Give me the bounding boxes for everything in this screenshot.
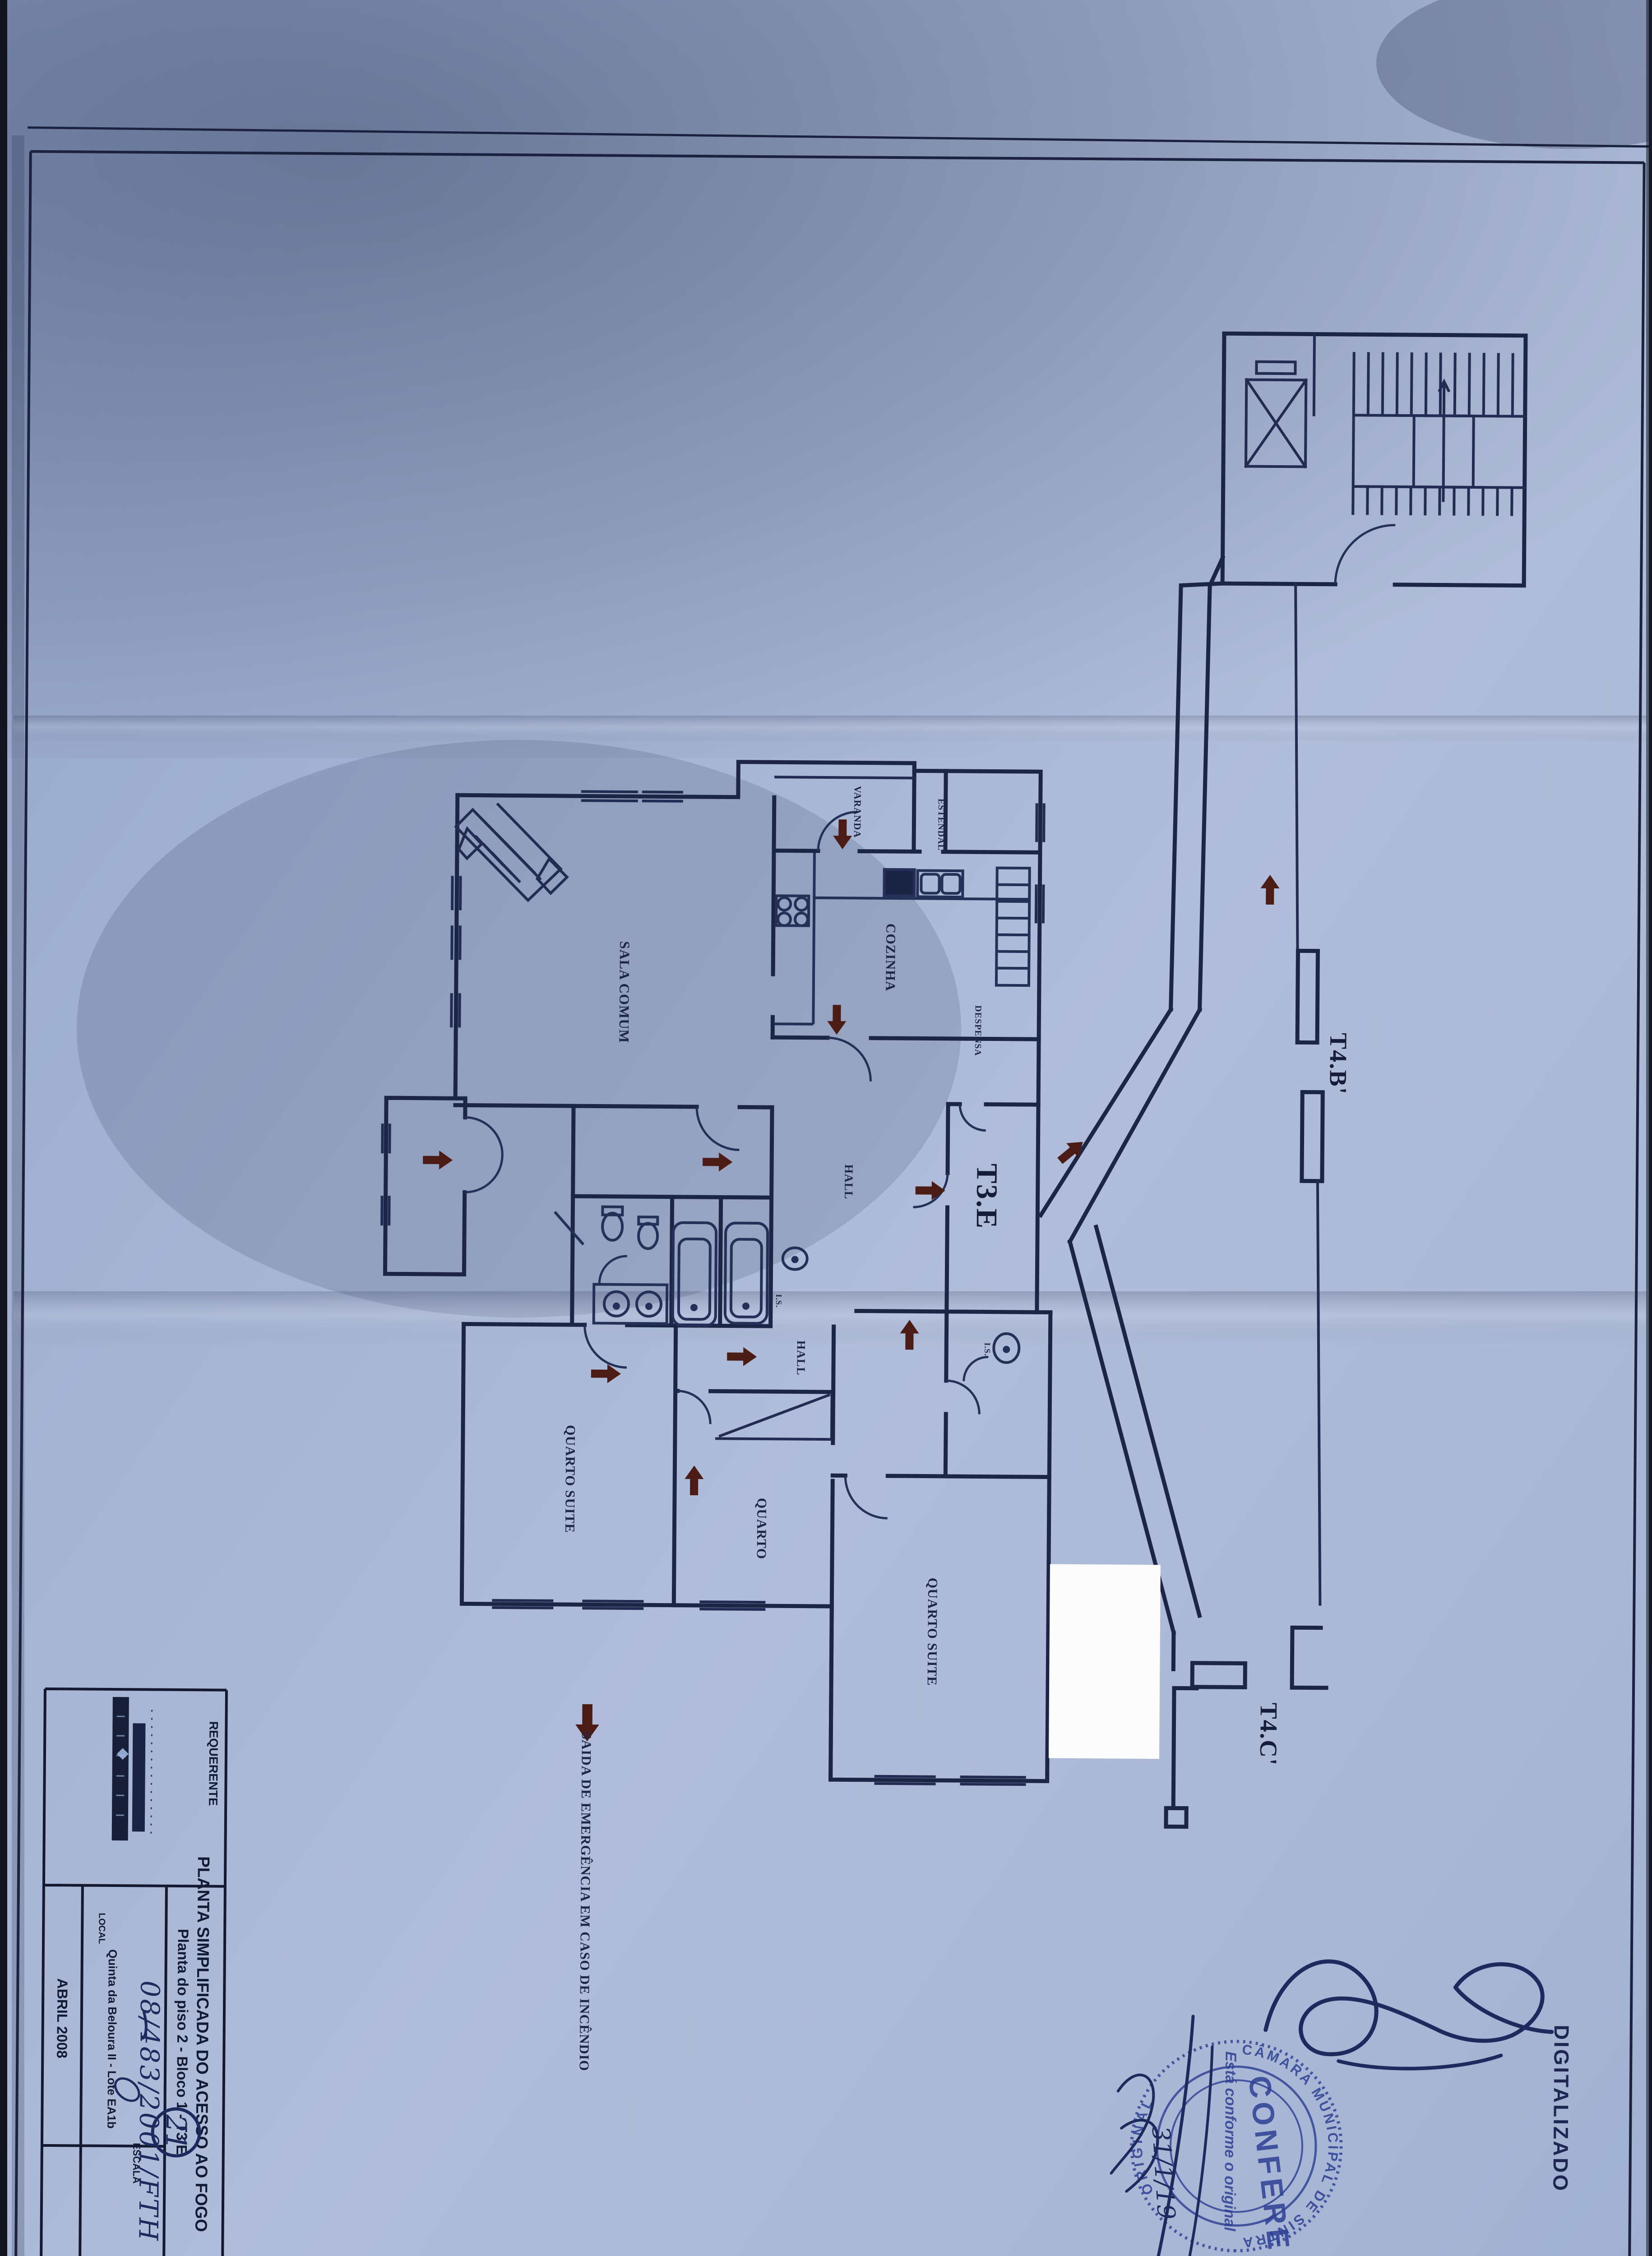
room-label-hall-lower: HALL (794, 1341, 808, 1376)
photo-edge-left (0, 0, 7, 2256)
room-label-varanda: VARANDA (852, 786, 864, 838)
scanned-floor-plan-page: REQUERENTE PLANTA SIMPLIFICADA DO ACESSO… (0, 0, 1652, 2256)
room-label-despensa: DESPENSA (973, 1005, 983, 1056)
room-label-quarto-suite-2: QUARTO SUITE (925, 1578, 940, 1686)
crease-line-1 (14, 716, 1647, 743)
room-label-is1: I.S. (774, 1294, 783, 1308)
emergency-note: SAIDA DE EMERGÊNCIA EM CASO DE INCÊNDIO (577, 1732, 594, 2071)
crease-line-2 (14, 1291, 1647, 1345)
room-label-estendal: ESTENDAL (936, 799, 946, 851)
local-value: Quinta da Beloura II - Lote EA1b (105, 1949, 120, 2128)
fold-shading-top (6, 0, 1649, 758)
unit-label-t3e: T3.E (970, 1163, 1004, 1229)
room-label-cozinha: COZINHA (883, 924, 898, 992)
scan-canvas: REQUERENTE PLANTA SIMPLIFICADA DO ACESSO… (0, 0, 1652, 2256)
photo-edge-right (1646, 0, 1652, 2256)
room-label-is2: I.S. (983, 1342, 992, 1356)
room-label-quarto-suite-1: QUARTO SUITE (562, 1425, 578, 1533)
room-label-hall-upper: HALL (842, 1164, 856, 1199)
stove-icon (884, 869, 914, 896)
white-patch (1049, 1564, 1161, 1759)
date-value: ABRIL 2008 (54, 1978, 70, 2058)
room-label-quarto: QUARTO (754, 1498, 769, 1559)
unit-label-t4c: T4.C' (1255, 1702, 1282, 1766)
stamp-note-text: Está conforme o original (1221, 2051, 1240, 2232)
process-number-text: 08/483/2001/FTH (133, 1980, 165, 2242)
unit-label-t4b: T4.B' (1324, 1033, 1352, 1095)
room-label-sala: SALA COMUM (616, 941, 633, 1043)
digitalizado-watermark: DIGITALIZADO (1549, 2025, 1573, 2192)
title-block-title: PLANTA SIMPLIFICADA DO ACESSO AO FOGO (192, 1856, 213, 2232)
requerente-label: REQUERENTE (206, 1721, 220, 1806)
local-label: LOCAL (97, 1913, 106, 1944)
stamp-handwritten-date: 31/1/19 (1147, 2125, 1181, 2220)
circled-number-text: 21 (159, 2114, 193, 2150)
